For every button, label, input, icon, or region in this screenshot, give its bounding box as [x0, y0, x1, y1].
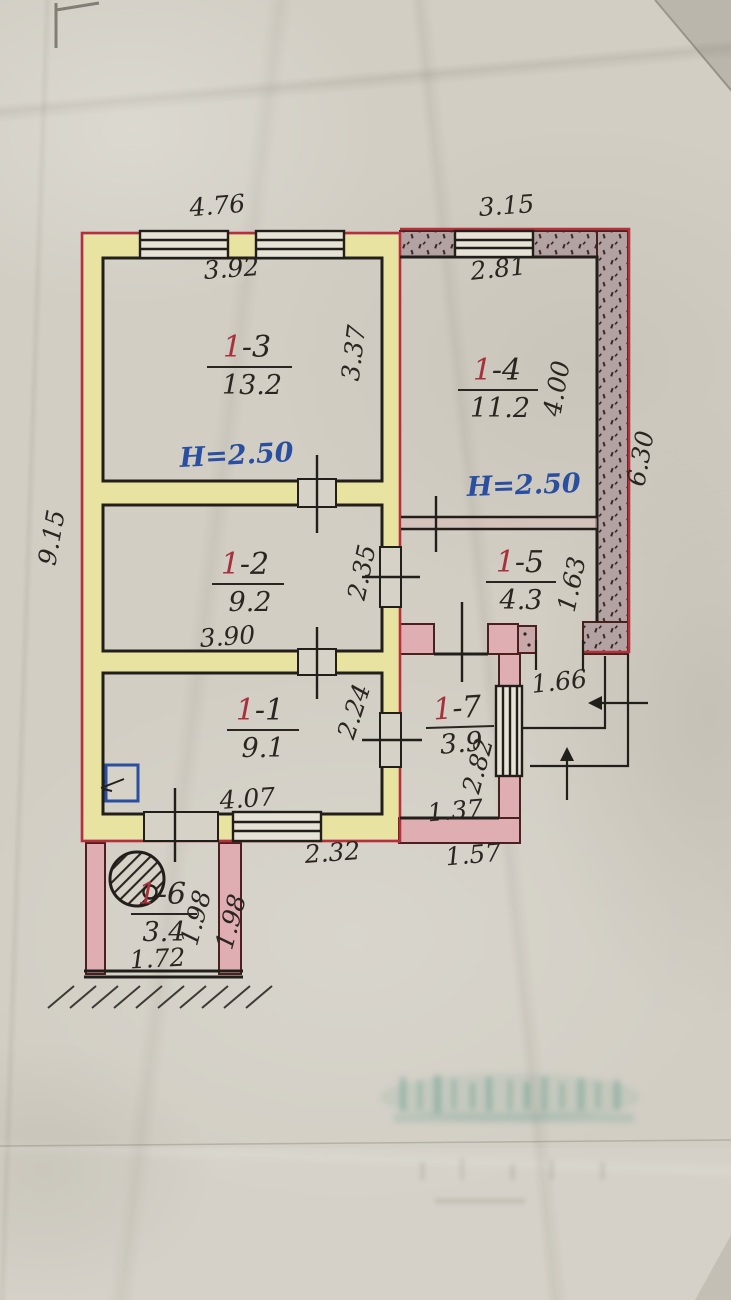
room-number: 1 [221, 547, 240, 582]
partition-1-4-1-5 [401, 496, 597, 552]
dim-label: 3.37 [336, 323, 372, 382]
room-label-1-5: 1-5 4.3 [486, 545, 556, 616]
room-number: -7 [451, 689, 484, 726]
dim-label: 1.37 [426, 794, 484, 828]
room-number: -5 [515, 545, 544, 580]
room-area: 13.2 [222, 370, 282, 401]
room-area: 11.2 [470, 393, 530, 424]
svg-text:1-5: 1-5 [496, 545, 544, 580]
room-label-1-2: 1-2 9.2 [212, 547, 284, 618]
room-number: 1 [236, 693, 255, 728]
dim-label: 1.98 [210, 891, 252, 952]
dim-label: 4.76 [187, 189, 246, 223]
dim-label: 1.72 [129, 943, 186, 975]
ceiling-height-label: H=2.50 [465, 468, 581, 503]
dim-label: 9.15 [33, 508, 71, 568]
wall-mid-1 [103, 481, 382, 505]
dim-label: 2.32 [303, 836, 362, 869]
room-label-1-4: 1-4 11.2 [458, 353, 538, 424]
wall-right [597, 231, 628, 652]
svg-text:1-6: 1-6 [138, 877, 186, 912]
paper-photo: 4.76 3.92 1-3 13.2 3.37 H=2.50 3.15 2.81… [0, 0, 731, 1300]
room-label-1-1: 1-1 9.1 [227, 693, 299, 764]
dim-label: 4.00 [537, 359, 575, 420]
dim-label: 1.66 [530, 664, 588, 699]
room-number: -2 [240, 547, 269, 582]
room-number: -6 [157, 877, 186, 912]
room-number: 1 [138, 877, 157, 912]
dim-label: 3.15 [478, 189, 536, 222]
svg-text:1-1: 1-1 [236, 693, 284, 728]
dim-label: 2.24 [331, 680, 376, 743]
dim-label: 2.81 [468, 251, 527, 286]
door-opening [144, 812, 218, 841]
room-number: 1 [473, 353, 492, 388]
room-number: 1 [432, 691, 453, 727]
ceiling-height-label: H=2.50 [178, 437, 295, 474]
stamp-smudge [380, 1073, 640, 1123]
window-icon [256, 231, 344, 258]
room-number: -4 [492, 353, 521, 388]
wall-mid-2 [103, 651, 382, 673]
room-number: 1 [496, 545, 515, 580]
window-icon [233, 812, 321, 841]
room-number: -1 [255, 693, 284, 728]
room-number: 1 [223, 330, 242, 365]
window-icon [496, 686, 522, 776]
dim-label: 4.07 [218, 782, 277, 815]
ground-hatch [48, 986, 272, 1008]
svg-text:1-7: 1-7 [432, 689, 484, 727]
dim-label: 3.92 [203, 252, 261, 285]
svg-text:1-3: 1-3 [223, 330, 271, 365]
room-area: 9.2 [229, 587, 272, 618]
room-area: 4.3 [499, 585, 543, 616]
room-number: -3 [242, 330, 271, 365]
dim-label: 1.57 [444, 838, 502, 872]
room-area: 9.1 [242, 733, 285, 764]
svg-text:1-4: 1-4 [473, 353, 521, 388]
meter-icon [101, 765, 138, 801]
dim-label: 1.63 [552, 554, 592, 614]
wall-1-6-left [86, 843, 105, 974]
window-icon [140, 231, 228, 258]
room-label-1-3: 1-3 13.2 [207, 330, 292, 401]
wall-left [84, 235, 103, 839]
wall-stub [583, 622, 628, 654]
dim-label: 3.90 [199, 620, 257, 653]
red-outline [82, 229, 629, 843]
svg-text:1-2: 1-2 [221, 547, 269, 582]
dim-label: 2.35 [342, 542, 382, 603]
floor-plan-svg: 4.76 3.92 1-3 13.2 3.37 H=2.50 3.15 2.81… [0, 0, 731, 1300]
